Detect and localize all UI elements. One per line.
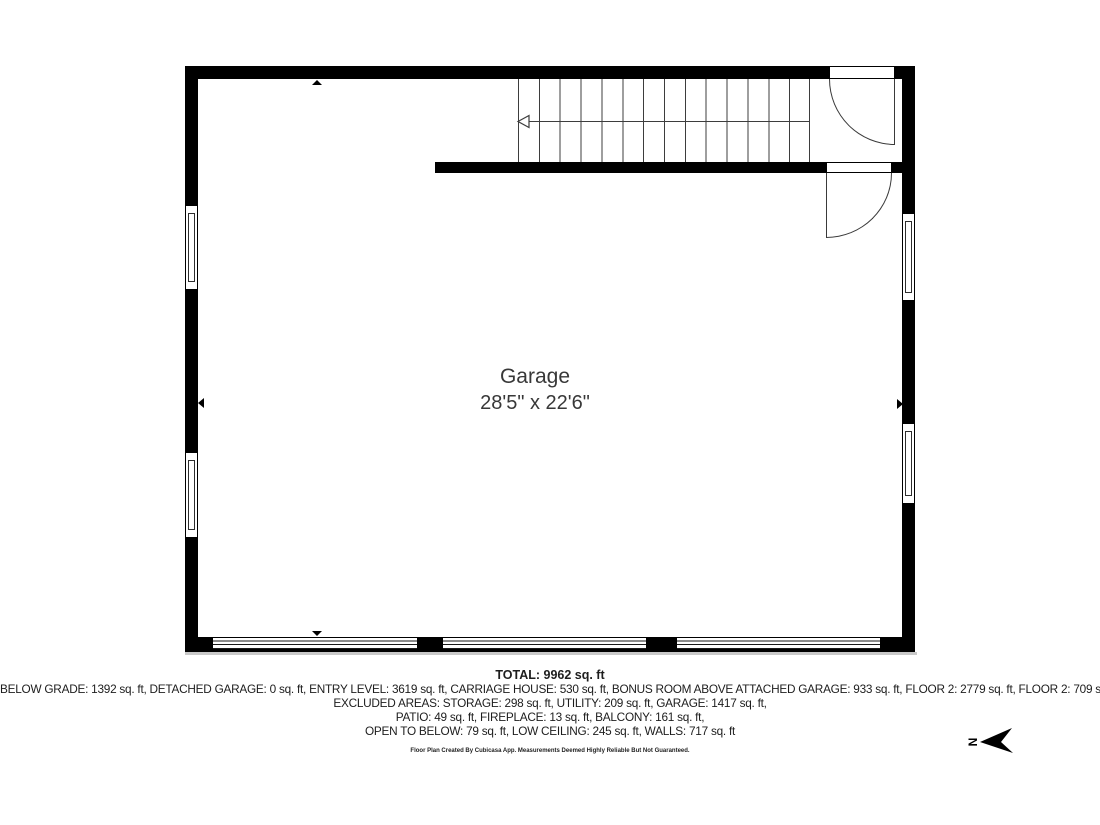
summary-patio-line: PATIO: 49 sq. ft, FIREPLACE: 13 sq. ft, … (0, 710, 1100, 724)
door-interior-swing-arc (826, 173, 892, 238)
window-pane (188, 213, 195, 282)
marker-left-arrow-icon (198, 398, 204, 408)
wall-top (185, 66, 915, 79)
stair-direction-line (519, 121, 809, 122)
window-left-lower (185, 452, 198, 538)
window-pane (188, 460, 195, 530)
area-summary: TOTAL: 9962 sq. ft BELOW GRADE: 1392 sq.… (0, 668, 1100, 754)
door-top-swing-arc (829, 79, 895, 145)
stair-direction-arrowhead (514, 112, 534, 130)
window-left-upper (185, 205, 198, 290)
room-name: Garage (385, 363, 685, 390)
window-pane (905, 221, 912, 293)
garage-door-middle (443, 637, 646, 652)
window-right-upper (902, 213, 915, 301)
marker-right-arrow-icon (897, 399, 903, 409)
summary-open-below-line: OPEN TO BELOW: 79 sq. ft, LOW CEILING: 2… (0, 724, 1100, 738)
marker-bottom-arrow-icon (312, 631, 322, 636)
room-label: Garage 28'5" x 22'6" (385, 363, 685, 417)
marker-top-arrow-icon (312, 80, 322, 85)
door-top-frame (829, 66, 895, 79)
room-dimensions: 28'5" x 22'6" (385, 390, 685, 417)
summary-total: TOTAL: 9962 sq. ft (0, 668, 1100, 682)
summary-excluded-line: EXCLUDED AREAS: STORAGE: 298 sq. ft, UTI… (0, 696, 1100, 710)
door-interior-frame (826, 162, 892, 173)
wall-right (902, 66, 915, 652)
garage-door-right (677, 637, 880, 652)
window-right-lower (902, 423, 915, 504)
wall-bottom-shadow (185, 652, 917, 655)
summary-areas-line: BELOW GRADE: 1392 sq. ft, DETACHED GARAG… (0, 682, 1100, 696)
garage-door-left (213, 637, 417, 652)
wall-left (185, 66, 198, 652)
disclaimer: Floor Plan Created By Cubicasa App. Meas… (0, 748, 1100, 754)
window-pane (905, 431, 912, 496)
